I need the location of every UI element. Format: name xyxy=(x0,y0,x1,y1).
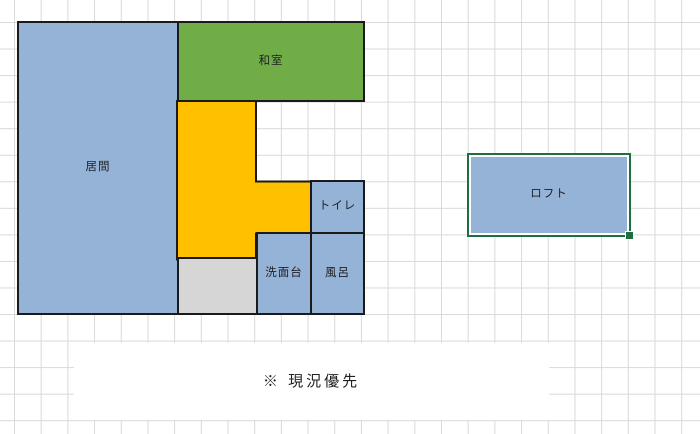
spreadsheet-grid[interactable]: 居間 和室 トイレ 洗面台 風呂 ロフト ※ 現況優先 xyxy=(0,0,700,434)
room-washbasin[interactable]: 洗面台 xyxy=(256,232,312,315)
room-living-label: 居間 xyxy=(86,162,111,174)
room-washitsu-label: 和室 xyxy=(259,56,284,68)
note-text: ※ 現況優先 xyxy=(263,374,360,389)
room-bath-label: 風呂 xyxy=(325,268,350,280)
room-living[interactable]: 居間 xyxy=(17,21,179,315)
room-loft-label: ロフト xyxy=(530,189,568,201)
room-washbasin-label: 洗面台 xyxy=(265,268,303,280)
room-bath[interactable]: 風呂 xyxy=(310,232,365,315)
room-loft[interactable]: ロフト xyxy=(467,153,631,237)
room-toilet-label: トイレ xyxy=(319,201,357,213)
room-toilet[interactable]: トイレ xyxy=(310,180,365,234)
selection-fill-handle-icon[interactable] xyxy=(625,231,634,240)
note-textbox[interactable]: ※ 現況優先 xyxy=(74,343,549,420)
area-utility-gray[interactable] xyxy=(177,257,258,315)
room-washitsu[interactable]: 和室 xyxy=(177,21,365,102)
